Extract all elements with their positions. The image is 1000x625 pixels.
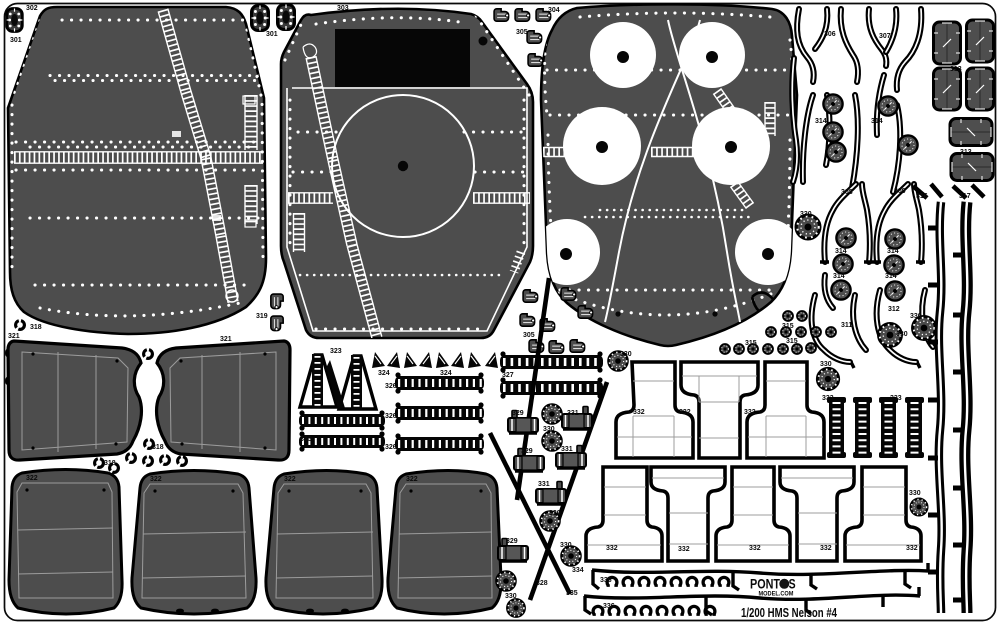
svg-text:MODEL.COM: MODEL.COM <box>759 591 794 598</box>
svg-text:333: 333 <box>890 395 902 402</box>
svg-text:326: 326 <box>385 413 397 420</box>
svg-text:336: 336 <box>603 603 615 610</box>
svg-text:328: 328 <box>536 580 548 587</box>
svg-text:323: 323 <box>330 348 342 355</box>
svg-text:318: 318 <box>152 444 164 451</box>
svg-text:315: 315 <box>745 340 757 347</box>
svg-text:332: 332 <box>678 546 690 553</box>
svg-text:318: 318 <box>104 460 116 467</box>
svg-text:332: 332 <box>633 409 645 416</box>
svg-text:336: 336 <box>600 577 612 584</box>
svg-text:305: 305 <box>523 332 535 339</box>
svg-text:314: 314 <box>885 273 897 280</box>
svg-text:307: 307 <box>879 33 891 40</box>
svg-text:332: 332 <box>906 545 918 552</box>
svg-text:330: 330 <box>543 426 555 433</box>
svg-text:330: 330 <box>896 331 908 338</box>
svg-text:311: 311 <box>841 322 852 329</box>
svg-text:331: 331 <box>561 446 573 453</box>
svg-text:333: 333 <box>822 395 834 402</box>
svg-text:332: 332 <box>749 545 761 552</box>
svg-text:331: 331 <box>538 481 550 488</box>
svg-text:306: 306 <box>824 31 836 38</box>
svg-text:314: 314 <box>833 273 845 280</box>
svg-text:313: 313 <box>950 66 962 73</box>
svg-text:330: 330 <box>620 351 632 358</box>
svg-text:326: 326 <box>385 444 397 451</box>
svg-text:332: 332 <box>744 409 756 416</box>
svg-text:332: 332 <box>606 545 618 552</box>
svg-text:312: 312 <box>888 306 900 313</box>
svg-text:S: S <box>789 577 796 592</box>
svg-text:316: 316 <box>916 193 928 200</box>
svg-text:330: 330 <box>800 211 812 218</box>
svg-text:305: 305 <box>516 29 528 36</box>
svg-text:322: 322 <box>26 475 38 482</box>
svg-text:301: 301 <box>266 31 278 38</box>
svg-text:315: 315 <box>782 323 794 330</box>
svg-text:315: 315 <box>786 338 798 345</box>
svg-text:324: 324 <box>378 370 390 377</box>
svg-text:303: 303 <box>337 5 349 12</box>
svg-text:334: 334 <box>572 567 584 574</box>
svg-text:304: 304 <box>548 7 560 14</box>
svg-text:325: 325 <box>300 436 312 443</box>
svg-text:330: 330 <box>505 593 517 600</box>
svg-text:329: 329 <box>521 448 533 455</box>
svg-text:327: 327 <box>502 372 514 379</box>
svg-text:332: 332 <box>820 545 832 552</box>
svg-text:331: 331 <box>567 410 579 417</box>
svg-text:PONT: PONT <box>750 577 781 592</box>
svg-text:321: 321 <box>220 336 232 343</box>
svg-text:330: 330 <box>549 510 561 517</box>
svg-text:309: 309 <box>894 188 906 195</box>
svg-text:330: 330 <box>820 361 832 368</box>
svg-text:301: 301 <box>10 37 22 44</box>
svg-text:319: 319 <box>256 313 268 320</box>
svg-text:313: 313 <box>960 149 972 156</box>
svg-text:330: 330 <box>560 542 572 549</box>
svg-text:314: 314 <box>871 118 883 125</box>
svg-text:322: 322 <box>406 476 418 483</box>
svg-text:329: 329 <box>506 538 518 545</box>
svg-text:322: 322 <box>150 476 162 483</box>
svg-text:314: 314 <box>835 248 847 255</box>
svg-text:1/200 HMS Nelson #4: 1/200 HMS Nelson #4 <box>741 605 838 620</box>
svg-text:314: 314 <box>887 248 899 255</box>
svg-text:332: 332 <box>679 409 691 416</box>
svg-text:329: 329 <box>512 410 524 417</box>
svg-text:317: 317 <box>959 193 971 200</box>
svg-text:318: 318 <box>30 324 42 331</box>
svg-text:330: 330 <box>909 490 921 497</box>
svg-text:326: 326 <box>385 383 397 390</box>
svg-text:322: 322 <box>284 476 296 483</box>
svg-text:302: 302 <box>26 5 38 12</box>
svg-text:335: 335 <box>566 590 578 597</box>
svg-text:324: 324 <box>440 370 452 377</box>
svg-text:321: 321 <box>8 333 20 340</box>
svg-text:308: 308 <box>841 189 853 196</box>
svg-text:314: 314 <box>815 118 827 125</box>
svg-text:330: 330 <box>910 313 922 320</box>
